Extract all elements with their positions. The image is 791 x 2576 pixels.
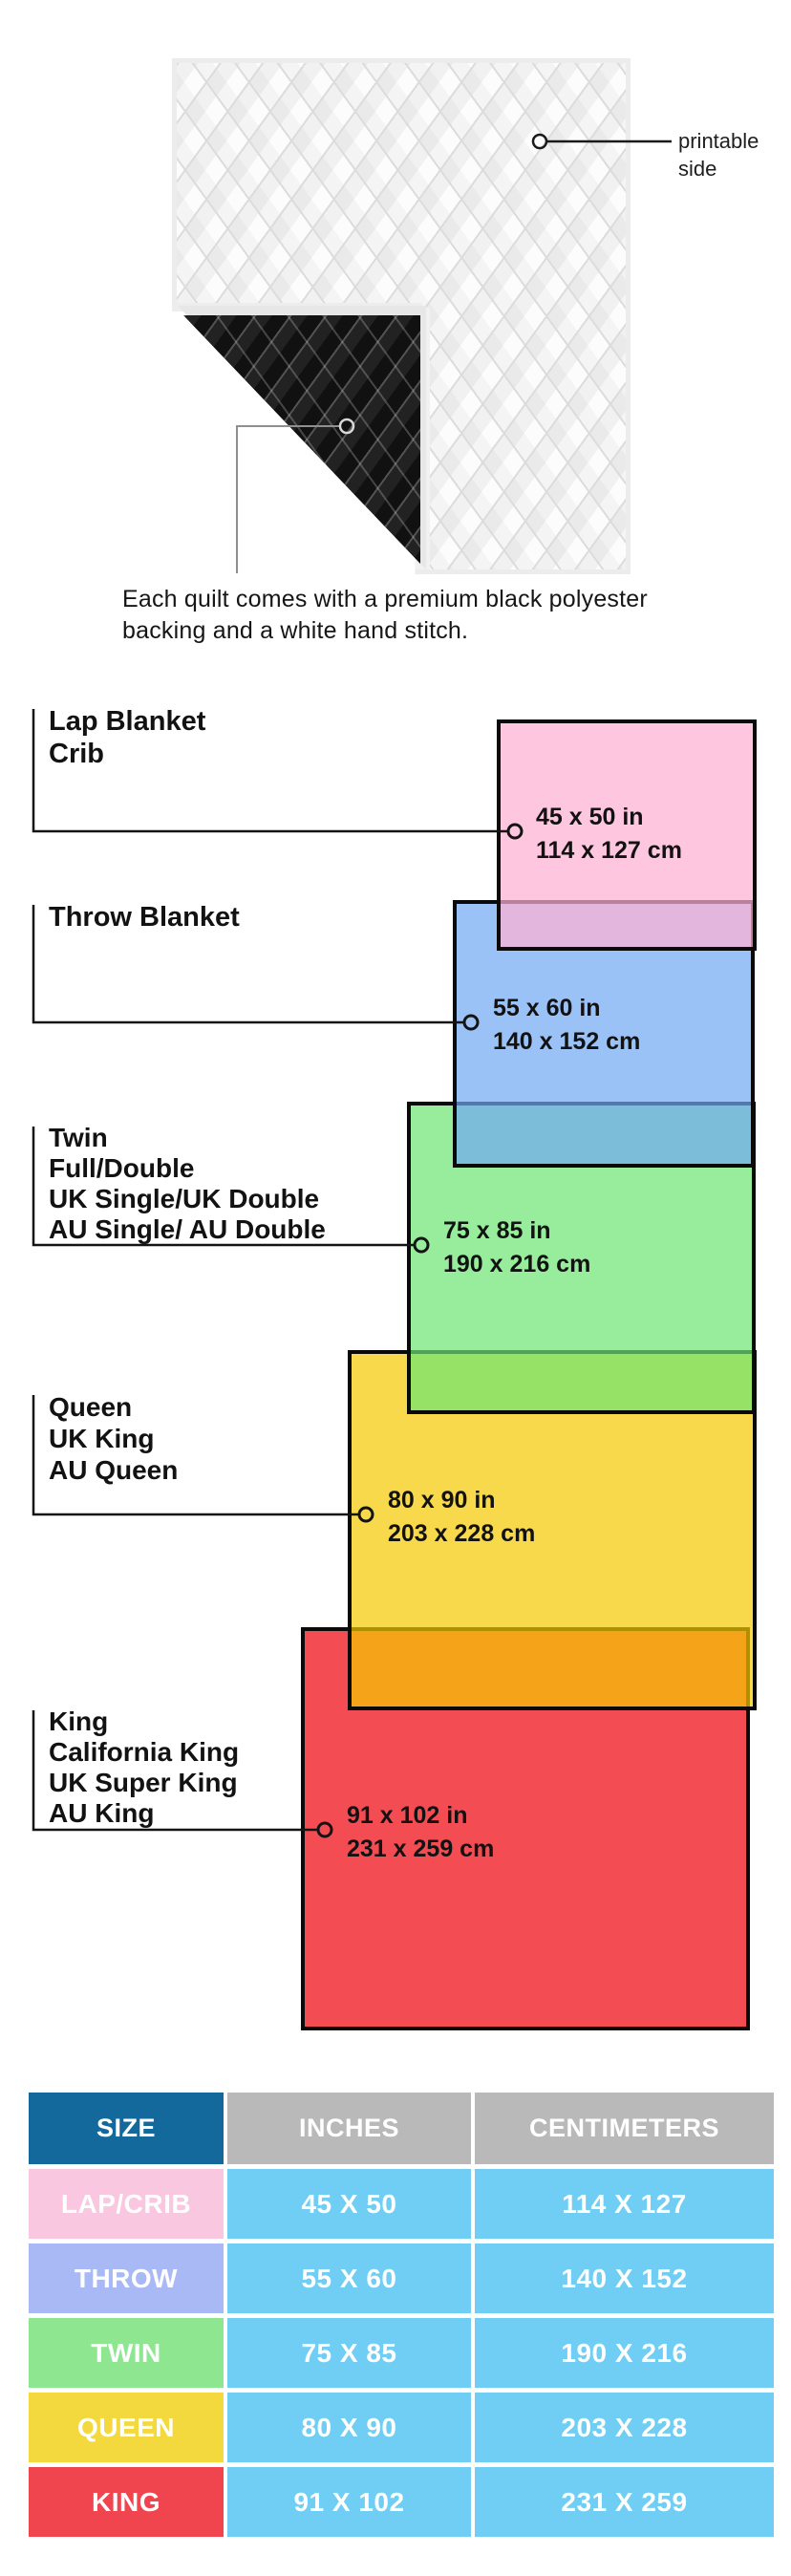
dimension-cm: 203 x 228 cm [388,1517,535,1551]
dimension-inches: 91 x 102 in [347,1799,494,1833]
table-header-centimeters: CENTIMETERS [475,2093,774,2164]
table-row-size: THROW [29,2243,224,2313]
lap-label-group: Lap Blanket Crib [49,705,205,770]
throw-label-group: Throw Blanket [49,901,240,934]
king-dimensions: 91 x 102 in 231 x 259 cm [347,1799,494,1866]
label-line: Queen [49,1391,178,1423]
table-row-cm: 140 X 152 [475,2243,774,2313]
label-line: UK Single/UK Double [49,1184,326,1214]
label-line: AU Single/ AU Double [49,1214,326,1245]
throw-dimensions: 55 x 60 in 140 x 152 cm [493,992,640,1059]
queen-dimensions: 80 x 90 in 203 x 228 cm [388,1484,535,1551]
quilt-caption: Each quilt comes with a premium black po… [122,584,715,647]
quilt-black-backing [183,315,420,564]
table-row-size: QUEEN [29,2393,224,2462]
label-line: AU King [49,1798,239,1829]
table-row-size: LAP/CRIB [29,2169,224,2239]
label-line: California King [49,1737,239,1768]
table-header-inches: INCHES [227,2093,471,2164]
table-row-cm: 231 X 259 [475,2467,774,2537]
twin-dimensions: 75 x 85 in 190 x 216 cm [443,1214,590,1281]
table-row-size: KING [29,2467,224,2537]
table-row-inches: 91 X 102 [227,2467,471,2537]
twin-label-group: Twin Full/Double UK Single/UK Double AU … [49,1123,326,1245]
size-table: SIZE INCHES CENTIMETERS LAP/CRIB 45 X 50… [29,2093,774,2537]
king-label-group: King California King UK Super King AU Ki… [49,1707,239,1829]
label-line: AU Queen [49,1454,178,1486]
lap-dimensions: 45 x 50 in 114 x 127 cm [536,801,682,868]
label-line: Throw Blanket [49,901,240,934]
dimension-cm: 140 x 152 cm [493,1025,640,1059]
table-row-size: TWIN [29,2318,224,2388]
table-row-inches: 45 X 50 [227,2169,471,2239]
label-line: Crib [49,738,205,770]
label-line: Twin [49,1123,326,1153]
dimension-inches: 55 x 60 in [493,992,640,1025]
dimension-cm: 190 x 216 cm [443,1248,590,1281]
quilt-size-chart-infographic: printable side Each quilt comes with a p… [0,0,791,2576]
table-row-inches: 55 X 60 [227,2243,471,2313]
table-row-inches: 75 X 85 [227,2318,471,2388]
label-line: UK Super King [49,1768,239,1798]
dimension-inches: 80 x 90 in [388,1484,535,1517]
table-row-cm: 114 X 127 [475,2169,774,2239]
table-row-inches: 80 X 90 [227,2393,471,2462]
printable-side-label: printable side [678,127,783,182]
dimension-inches: 45 x 50 in [536,801,682,834]
table-row-cm: 190 X 216 [475,2318,774,2388]
table-row-cm: 203 X 228 [475,2393,774,2462]
label-line: Lap Blanket [49,705,205,738]
queen-label-group: Queen UK King AU Queen [49,1391,178,1486]
table-header-size: SIZE [29,2093,224,2164]
label-line: Full/Double [49,1153,326,1184]
dimension-cm: 231 x 259 cm [347,1833,494,1866]
label-line: King [49,1707,239,1737]
label-line: UK King [49,1423,178,1454]
dimension-cm: 114 x 127 cm [536,834,682,868]
dimension-inches: 75 x 85 in [443,1214,590,1248]
